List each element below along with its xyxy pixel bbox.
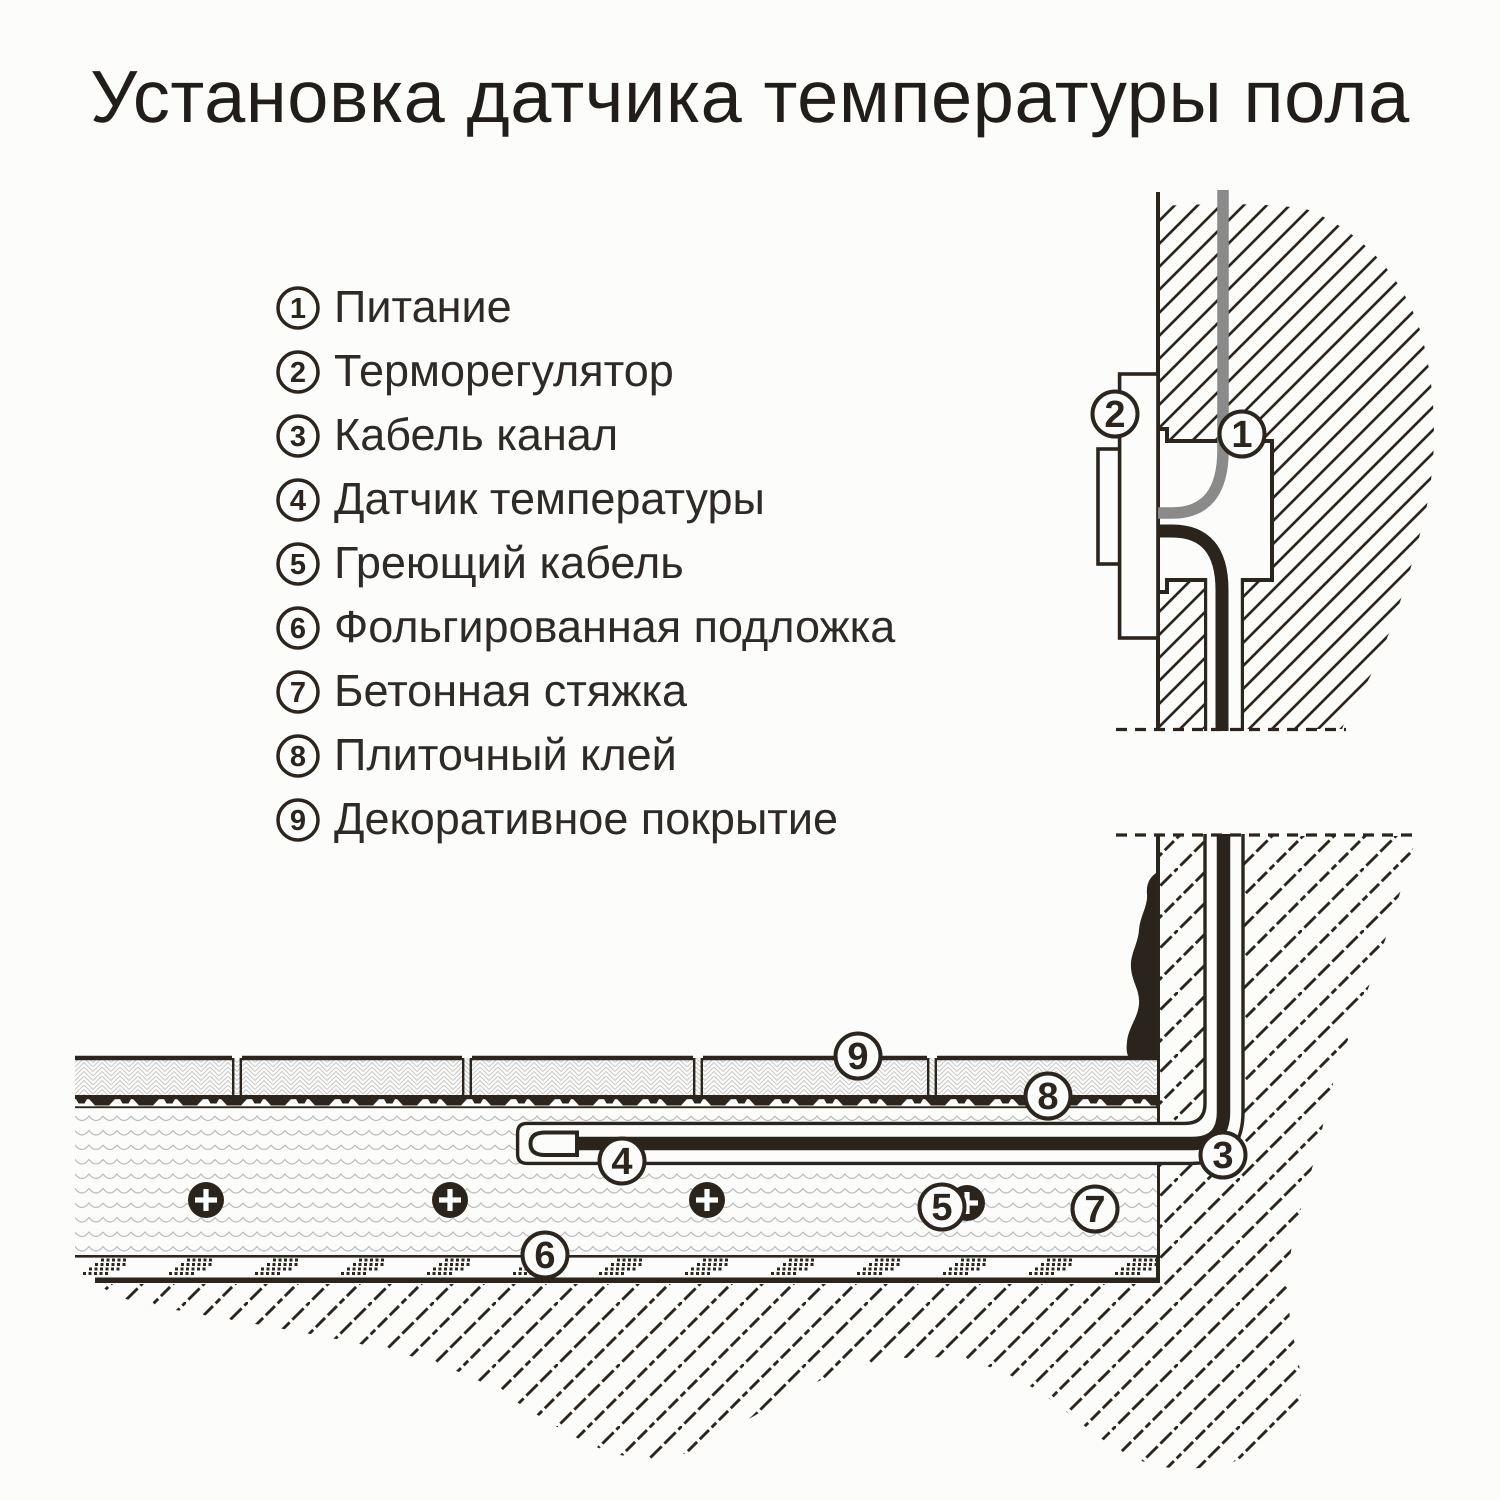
svg-text:4: 4 — [611, 1141, 632, 1183]
svg-text:2: 2 — [290, 357, 306, 389]
svg-text:7: 7 — [290, 677, 306, 709]
svg-text:5: 5 — [931, 1187, 952, 1229]
svg-text:Декоративное покрытие: Декоративное покрытие — [334, 793, 838, 844]
svg-text:Фольгированная подложка: Фольгированная подложка — [334, 601, 896, 652]
svg-text:Кабель канал: Кабель канал — [334, 409, 618, 460]
svg-text:2: 2 — [1104, 394, 1125, 436]
svg-text:3: 3 — [290, 421, 306, 453]
svg-text:8: 8 — [1037, 1076, 1058, 1118]
svg-text:9: 9 — [290, 805, 306, 837]
svg-text:6: 6 — [290, 613, 306, 645]
svg-text:Датчик температуры: Датчик температуры — [334, 473, 765, 524]
svg-text:Плиточный клей: Плиточный клей — [334, 729, 677, 780]
svg-text:Установка датчика температуры: Установка датчика температуры пола — [90, 55, 1410, 138]
svg-text:4: 4 — [290, 485, 306, 517]
svg-text:3: 3 — [1212, 1135, 1233, 1177]
svg-text:6: 6 — [534, 1235, 555, 1277]
svg-text:8: 8 — [290, 741, 306, 773]
svg-text:Питание: Питание — [334, 281, 512, 332]
svg-text:1: 1 — [290, 293, 306, 325]
svg-text:Терморегулятор: Терморегулятор — [334, 345, 674, 396]
svg-text:5: 5 — [290, 549, 306, 581]
svg-text:Бетонная стяжка: Бетонная стяжка — [334, 665, 688, 716]
svg-text:Греющий кабель: Греющий кабель — [334, 537, 684, 588]
svg-text:9: 9 — [847, 1036, 868, 1078]
svg-text:1: 1 — [1231, 414, 1252, 456]
svg-text:7: 7 — [1084, 1189, 1105, 1231]
